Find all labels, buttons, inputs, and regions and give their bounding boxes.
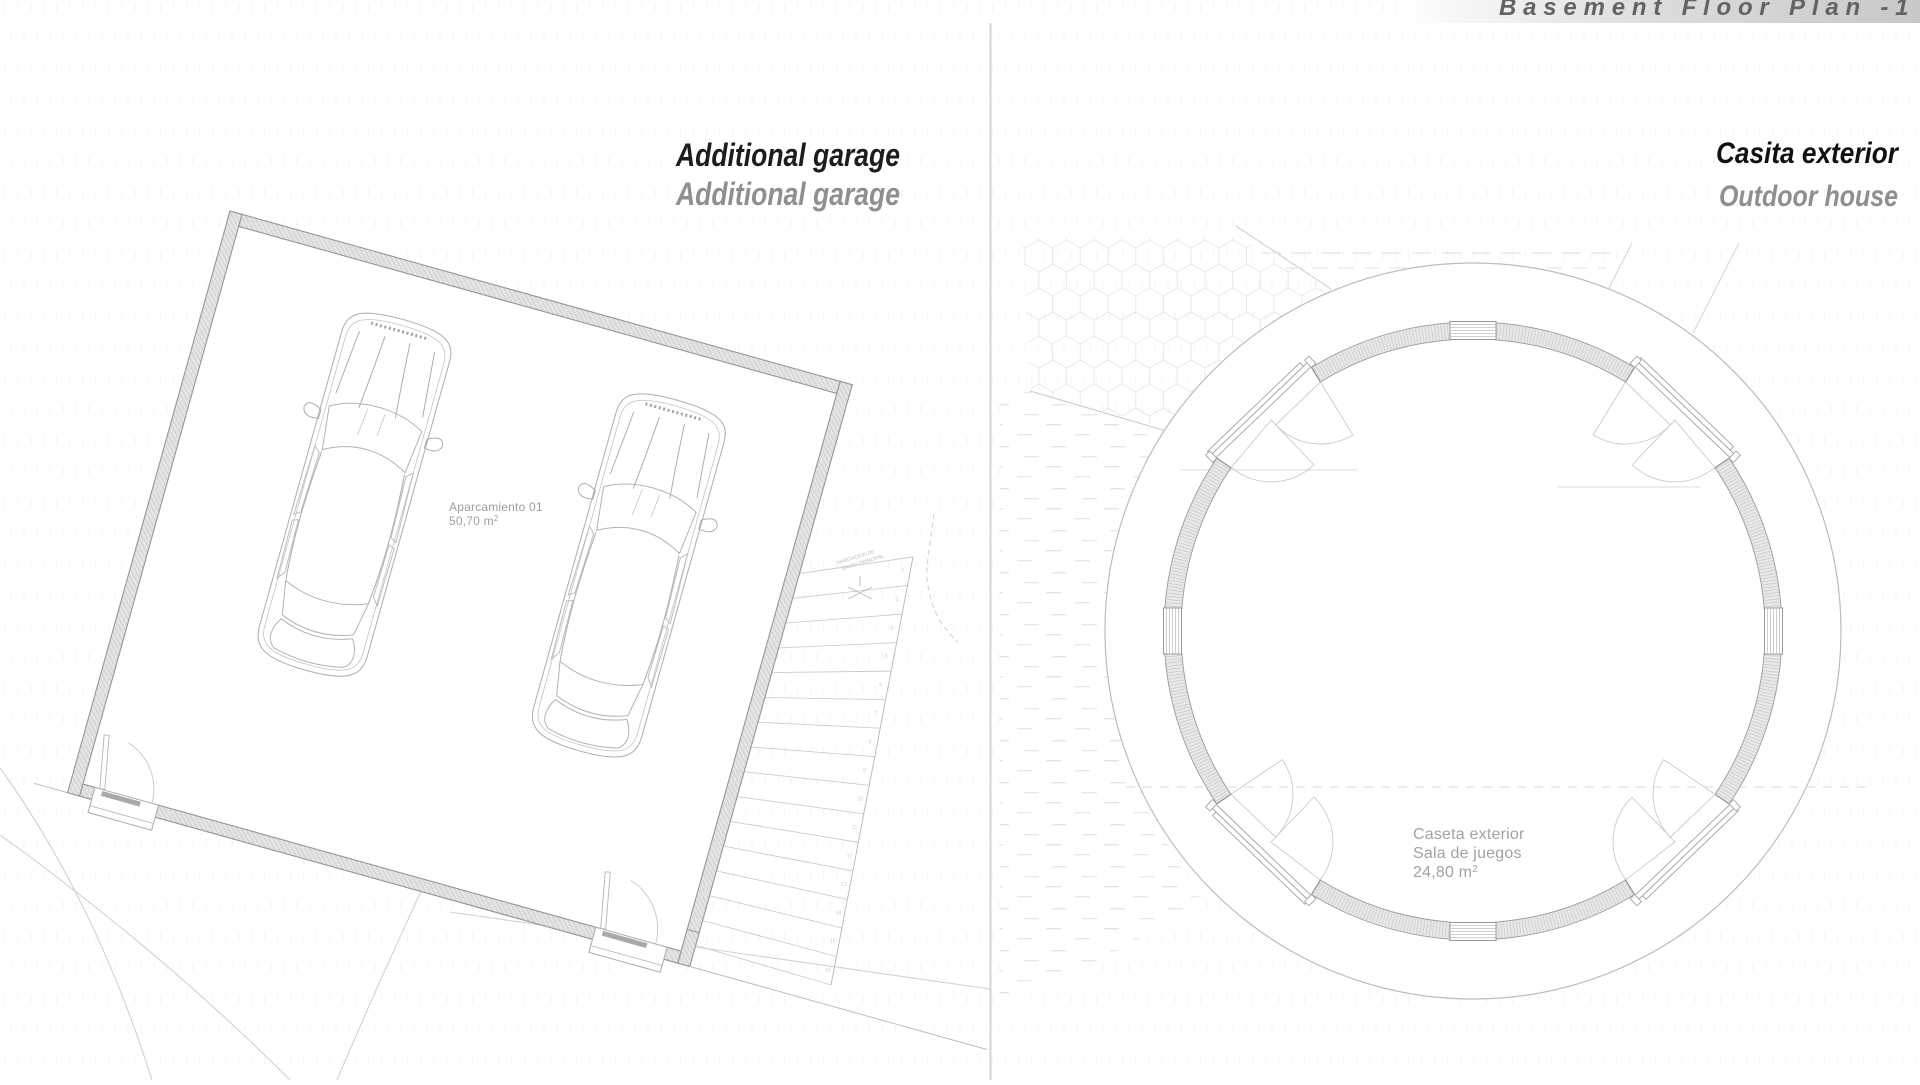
svg-text:12: 12 [847,854,853,860]
svg-text:Outdoor house: Outdoor house [1719,180,1898,213]
svg-text:9: 9 [863,768,866,774]
svg-text:10: 10 [858,797,864,803]
svg-text:Additional garage: Additional garage [675,176,900,212]
svg-text:14: 14 [836,911,842,917]
svg-text:8: 8 [869,740,872,746]
svg-text:Caseta exterior: Caseta exterior [1413,826,1525,843]
svg-text:7: 7 [874,711,877,717]
svg-text:16: 16 [825,968,831,974]
svg-text:24,80 m2: 24,80 m2 [1413,864,1478,881]
svg-text:4: 4 [890,625,893,631]
svg-text:Aparcamiento 01: Aparcamiento 01 [449,500,543,514]
svg-text:Sala de juegos: Sala de juegos [1413,845,1522,862]
svg-text:15: 15 [830,939,836,945]
svg-text:3: 3 [896,597,899,603]
svg-text:50,70 m2: 50,70 m2 [449,514,499,528]
svg-text:Additional garage: Additional garage [675,137,900,173]
svg-text:6: 6 [879,682,882,688]
svg-text:11: 11 [852,825,857,831]
svg-text:Basement Floor Plan -1: Basement Floor Plan -1 [1499,0,1915,21]
svg-text:Casita exterior: Casita exterior [1716,137,1900,170]
svg-text:13: 13 [841,882,847,888]
svg-text:2: 2 [901,568,904,574]
svg-text:5: 5 [885,654,888,660]
